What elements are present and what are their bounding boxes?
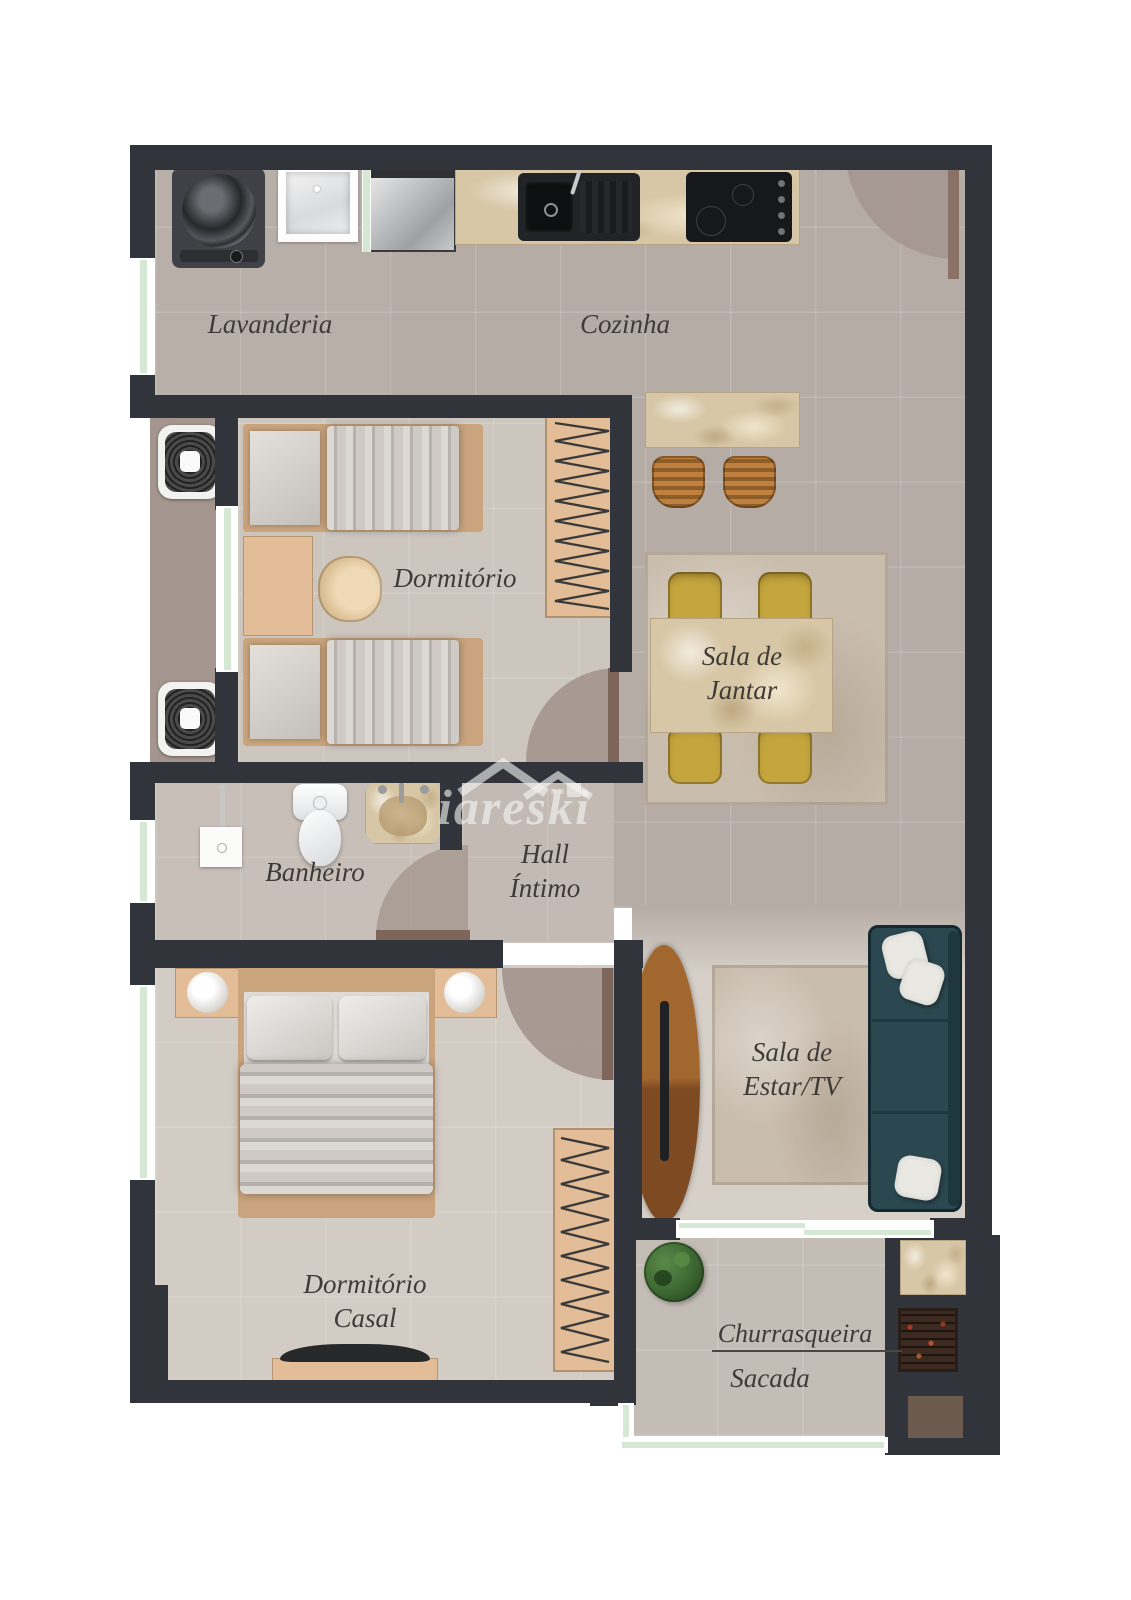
double-bed-icon <box>238 966 435 1218</box>
bar-stool-icon <box>723 456 776 508</box>
wall <box>610 395 632 672</box>
bedroom-door-leaf <box>608 668 619 764</box>
barbecue-counter <box>900 1240 966 1295</box>
wall <box>130 1380 632 1403</box>
laundry-glass-divider <box>362 168 371 252</box>
churrasqueira-leader-line <box>712 1350 902 1352</box>
single-bed-icon <box>243 424 483 532</box>
window <box>131 258 155 375</box>
shower-panel <box>200 827 242 867</box>
pillow-icon <box>893 1153 944 1202</box>
single-bed-icon <box>243 638 483 746</box>
kitchen-sink-icon <box>518 173 640 241</box>
cooktop-icon <box>686 172 792 242</box>
window <box>131 985 155 1180</box>
desk <box>243 536 313 636</box>
wall <box>614 948 642 1240</box>
tv-icon <box>280 1344 430 1362</box>
wall <box>130 145 992 170</box>
sofa-icon <box>868 925 962 1212</box>
room-label-hall-intimo: HallÍntimo <box>475 838 615 906</box>
washing-machine-icon <box>172 168 265 268</box>
plant-icon <box>644 1242 704 1302</box>
lamp-icon <box>444 972 485 1013</box>
floor-plan: Lavanderia Cozinha Dormitório Sala deJan… <box>0 0 1131 1600</box>
wall <box>965 145 992 1240</box>
label-churrasqueira: Churrasqueira <box>700 1318 890 1351</box>
shower-icon <box>220 785 225 830</box>
peninsula-counter <box>645 392 800 448</box>
entrance-door-leaf <box>948 163 959 279</box>
barbecue-grill-icon <box>898 1308 958 1372</box>
room-label-sacada: Sacada <box>690 1362 850 1396</box>
watermark-text: iareski <box>438 778 591 836</box>
tv-icon <box>660 1001 669 1161</box>
room-label-sala-jantar: Sala deJantar <box>662 640 822 708</box>
room-label-lavanderia: Lavanderia <box>190 308 350 342</box>
wall <box>130 145 155 258</box>
lamp-icon <box>187 972 228 1013</box>
wall <box>930 1218 970 1240</box>
wardrobe-icon <box>553 1128 620 1372</box>
bar-stool-icon <box>652 456 705 508</box>
wall <box>130 783 155 820</box>
room-label-sala-estar: Sala deEstar/TV <box>712 1036 872 1104</box>
room-label-cozinha: Cozinha <box>545 308 705 342</box>
glass-railing <box>618 1437 888 1453</box>
wall <box>215 418 238 510</box>
ac-condenser-icon <box>158 425 222 499</box>
sliding-glass-door <box>676 1220 934 1238</box>
master-door-leaf <box>602 968 613 1080</box>
room-label-dormitorio-casal: DormitórioCasal <box>275 1268 455 1336</box>
dining-chair-icon <box>758 726 812 784</box>
refrigerator-icon <box>368 166 456 252</box>
room-label-banheiro: Banheiro <box>240 856 390 890</box>
wall <box>130 395 632 418</box>
window <box>131 820 155 903</box>
wall <box>215 668 238 764</box>
faucet-handle-icon <box>378 785 387 794</box>
ac-condenser-icon <box>158 682 222 756</box>
laundry-sink-icon <box>278 164 358 242</box>
wall <box>632 1218 680 1240</box>
window <box>216 506 238 672</box>
faucet-handle-icon <box>420 785 429 794</box>
balcony-cabinet <box>908 1396 963 1438</box>
faucet-icon <box>399 783 404 803</box>
dining-chair-icon <box>668 726 722 784</box>
wall <box>130 1180 155 1285</box>
wall <box>130 940 503 968</box>
room-label-dormitorio: Dormitório <box>370 562 540 596</box>
